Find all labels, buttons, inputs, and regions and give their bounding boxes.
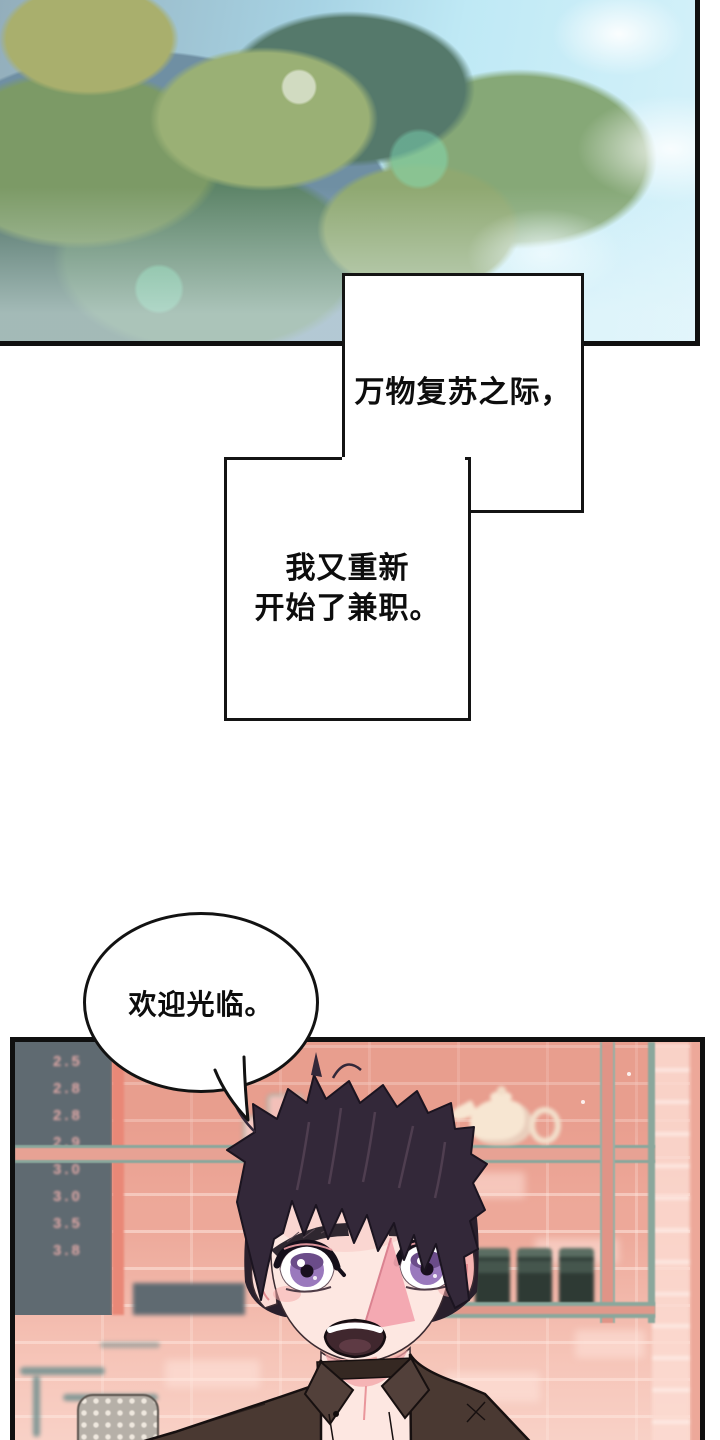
narration-text-2-line2: 开始了兼职。: [255, 589, 441, 629]
narration-box-joint: [342, 457, 465, 507]
cafe-panel: 2.5 2.8 2.8 2.9 3.0 3.0 3.5 3.8: [10, 1037, 705, 1440]
speech-bubble-tail: [195, 1045, 265, 1130]
narration-text-2-line1: 我又重新: [255, 549, 441, 589]
narration-text-2: 我又重新 开始了兼职。: [255, 549, 441, 629]
speech-bubble-text: 欢迎光临。: [128, 983, 273, 1023]
character-illustration: [15, 1042, 690, 1440]
comic-page[interactable]: 万物复苏之际， 我又重新 开始了兼职。 2.5 2.8 2.8 2.9 3.0 …: [0, 0, 720, 1440]
narration-text-1: 万物复苏之际，: [355, 373, 572, 413]
